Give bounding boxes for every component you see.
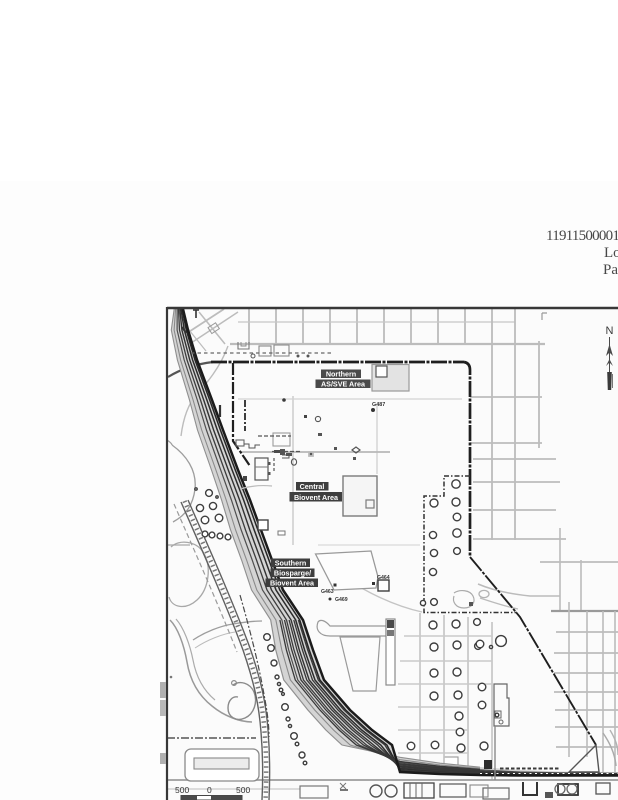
svg-text:Northern: Northern (326, 370, 356, 379)
svg-text:G463: G463 (321, 589, 334, 595)
svg-text:G469: G469 (335, 597, 348, 603)
svg-text:Biovent Area: Biovent Area (270, 579, 315, 588)
svg-text:0: 0 (207, 785, 212, 795)
svg-text:AS/SVE Area: AS/SVE Area (321, 380, 366, 389)
svg-text:G464: G464 (377, 575, 390, 581)
svg-text:500: 500 (175, 785, 189, 795)
svg-text:Central: Central (300, 482, 325, 491)
svg-text:Biosparge/: Biosparge/ (274, 569, 311, 578)
svg-text:500: 500 (236, 785, 250, 795)
svg-text:Biovent Area: Biovent Area (294, 493, 339, 502)
svg-text:Southern: Southern (275, 559, 307, 568)
svg-text:N: N (606, 325, 614, 337)
svg-text:G487: G487 (372, 402, 385, 408)
